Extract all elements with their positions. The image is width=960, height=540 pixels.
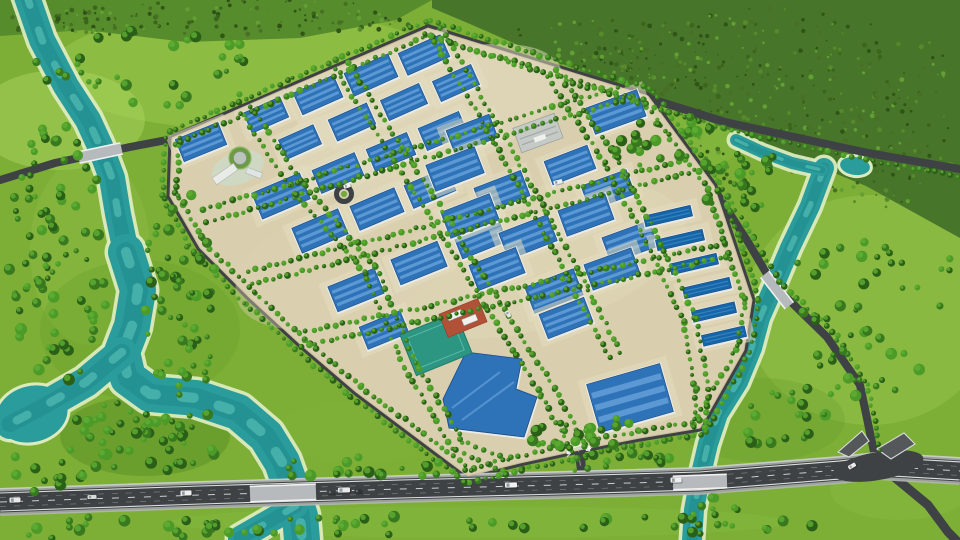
vehicle [87, 495, 97, 501]
aerial-3d-render [0, 0, 960, 540]
vehicle [327, 490, 335, 495]
vehicle [505, 482, 518, 489]
vehicle [338, 487, 351, 494]
vehicle [9, 497, 21, 504]
vehicle [354, 489, 362, 494]
vehicle [180, 490, 192, 497]
vehicle [670, 477, 682, 484]
bridge [250, 483, 317, 502]
scene-svg [0, 0, 960, 540]
